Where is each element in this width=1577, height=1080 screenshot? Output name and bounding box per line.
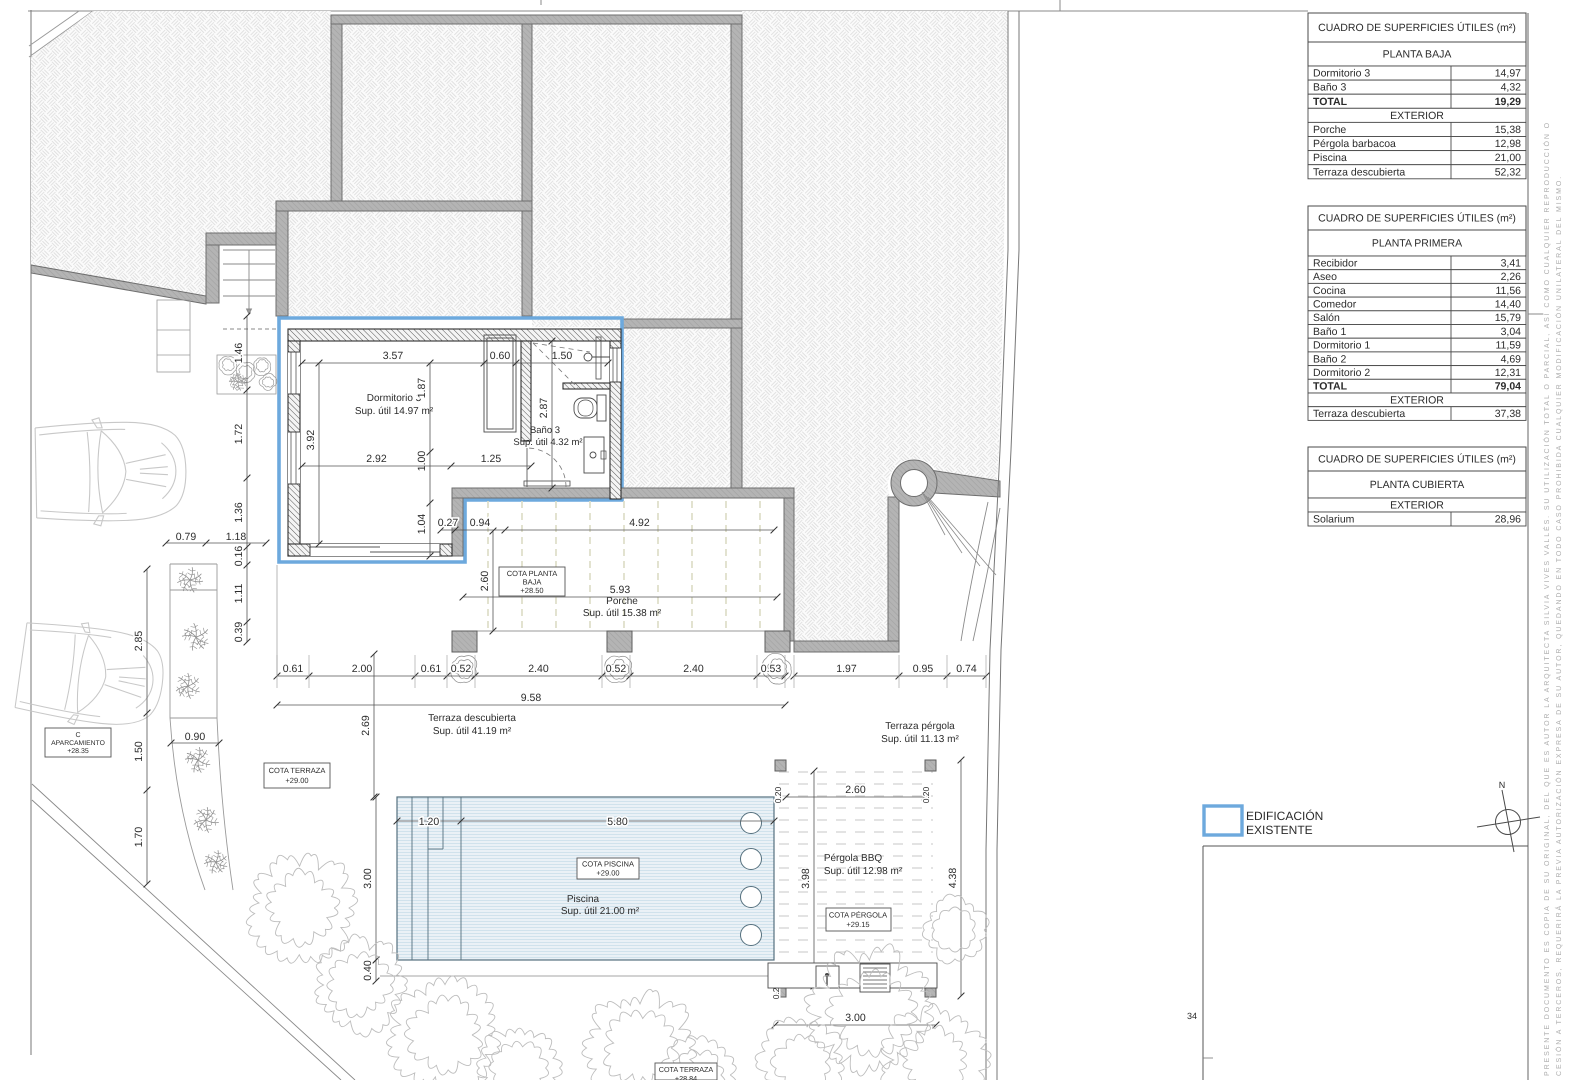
svg-text:TOTAL: TOTAL [1313, 96, 1348, 108]
svg-text:Comedor: Comedor [1313, 298, 1357, 310]
svg-text:0.52: 0.52 [451, 663, 472, 675]
svg-text:12,98: 12,98 [1495, 138, 1521, 150]
svg-text:12,31: 12,31 [1495, 367, 1521, 379]
svg-text:1.50: 1.50 [133, 741, 145, 762]
svg-text:0.61: 0.61 [421, 663, 442, 675]
svg-text:1.18: 1.18 [226, 531, 247, 543]
svg-text:1.36: 1.36 [233, 502, 245, 523]
svg-text:+29.15: +29.15 [846, 920, 869, 929]
svg-text:3,41: 3,41 [1501, 257, 1522, 269]
svg-text:Salón: Salón [1313, 312, 1340, 324]
svg-text:Sup. útil 21.00 m²: Sup. útil 21.00 m² [561, 906, 640, 917]
svg-text:Dormitorio 2: Dormitorio 2 [1313, 367, 1370, 379]
svg-text:EXISTENTE: EXISTENTE [1246, 823, 1313, 837]
svg-text:Sup. útil 11.13 m²: Sup. útil 11.13 m² [881, 734, 959, 745]
svg-text:Porche: Porche [606, 596, 638, 607]
svg-text:Pérgola barbacoa: Pérgola barbacoa [1313, 138, 1396, 150]
svg-text:1.50: 1.50 [552, 350, 573, 362]
svg-text:0.39: 0.39 [233, 622, 245, 643]
svg-text:Solarium: Solarium [1313, 514, 1355, 526]
svg-text:1.87: 1.87 [416, 378, 428, 399]
svg-text:3.92: 3.92 [305, 430, 317, 451]
svg-text:79,04: 79,04 [1495, 381, 1521, 393]
svg-text:5.80: 5.80 [607, 816, 628, 828]
svg-text:Baño 1: Baño 1 [1313, 326, 1346, 338]
svg-text:2.87: 2.87 [538, 398, 550, 419]
svg-text:+29.00: +29.00 [596, 869, 619, 878]
svg-text:APARCAMIENTO: APARCAMIENTO [51, 740, 105, 747]
svg-text:1.72: 1.72 [233, 424, 245, 445]
svg-text:Dormitorio 3: Dormitorio 3 [367, 393, 422, 404]
svg-text:14,97: 14,97 [1495, 68, 1521, 80]
svg-text:2.40: 2.40 [528, 663, 549, 675]
svg-text:EXTERIOR: EXTERIOR [1390, 394, 1444, 406]
svg-text:2.92: 2.92 [366, 453, 387, 465]
svg-text:+28.50: +28.50 [520, 586, 543, 595]
svg-text:Baño 2: Baño 2 [1313, 353, 1346, 365]
svg-text:Sup. útil 12.98 m²: Sup. útil 12.98 m² [824, 866, 903, 877]
svg-text:N: N [1499, 780, 1506, 790]
svg-text:EXTERIOR: EXTERIOR [1390, 500, 1444, 512]
svg-text:Cocina: Cocina [1313, 285, 1346, 297]
svg-text:15,38: 15,38 [1495, 124, 1521, 136]
svg-text:0.52: 0.52 [606, 663, 627, 675]
svg-text:52,32: 52,32 [1495, 166, 1521, 178]
svg-text:2.69: 2.69 [360, 715, 372, 736]
svg-text:COTA PÉRGOLA: COTA PÉRGOLA [829, 911, 887, 920]
svg-text:1.00: 1.00 [416, 451, 428, 472]
svg-text:0.94: 0.94 [470, 517, 491, 529]
svg-text:2.60: 2.60 [479, 571, 491, 592]
svg-text:4,32: 4,32 [1501, 82, 1522, 94]
svg-text:9.58: 9.58 [521, 692, 542, 704]
svg-text:1.97: 1.97 [836, 663, 857, 675]
svg-text:4.38: 4.38 [947, 868, 959, 889]
svg-text:21,00: 21,00 [1495, 152, 1521, 164]
svg-text:0.95: 0.95 [913, 663, 934, 675]
svg-text:Aseo: Aseo [1313, 271, 1337, 283]
svg-text:4.92: 4.92 [629, 517, 650, 529]
svg-text:PLANTA BAJA: PLANTA BAJA [1383, 49, 1452, 61]
svg-text:0.60: 0.60 [490, 350, 511, 362]
svg-text:19,29: 19,29 [1495, 96, 1521, 108]
svg-text:+28.35: +28.35 [67, 748, 89, 755]
svg-text:3.00: 3.00 [845, 1012, 866, 1024]
svg-text:0.40: 0.40 [362, 960, 374, 981]
svg-text:+29.00: +29.00 [285, 776, 308, 785]
svg-text:CUADRO DE SUPERFICIES ÚTILES (: CUADRO DE SUPERFICIES ÚTILES (m²) [1318, 21, 1516, 34]
svg-text:Sup. útil 41.19 m²: Sup. útil 41.19 m² [433, 726, 512, 737]
svg-text:CESIÓN A TERCEROS, REQUERIRÁ L: CESIÓN A TERCEROS, REQUERIRÁ LA PREVIA A… [1554, 175, 1563, 1076]
svg-text:0.53: 0.53 [761, 663, 782, 675]
svg-text:PLANTA CUBIERTA: PLANTA CUBIERTA [1370, 479, 1465, 491]
svg-text:Pérgola BBQ: Pérgola BBQ [824, 853, 883, 864]
svg-text:3.98: 3.98 [800, 868, 812, 889]
svg-text:2.85: 2.85 [133, 631, 145, 652]
svg-text:Terraza descubierta: Terraza descubierta [1313, 408, 1405, 420]
svg-text:3,04: 3,04 [1501, 326, 1522, 338]
svg-text:1.04: 1.04 [416, 514, 428, 535]
svg-text:15,79: 15,79 [1495, 312, 1521, 324]
svg-text:4,69: 4,69 [1501, 353, 1522, 365]
svg-text:Sup. útil 14.97 m²: Sup. útil 14.97 m² [355, 406, 434, 417]
svg-text:Porche: Porche [1313, 124, 1346, 136]
svg-text:11,56: 11,56 [1496, 285, 1522, 297]
svg-text:CUADRO DE SUPERFICIES ÚTILES (: CUADRO DE SUPERFICIES ÚTILES (m²) [1318, 453, 1516, 466]
svg-text:Terraza descubierta: Terraza descubierta [1313, 166, 1405, 178]
svg-text:COTA PISCINA: COTA PISCINA [582, 860, 634, 869]
svg-text:0.20: 0.20 [773, 786, 783, 803]
svg-text:PRESENTE DOCUMENTO ES COPIA DE: PRESENTE DOCUMENTO ES COPIA DE SU ORIGIN… [1542, 121, 1551, 1076]
svg-text:EDIFICACIÓN: EDIFICACIÓN [1246, 809, 1323, 823]
svg-text:C: C [75, 732, 80, 739]
svg-text:11,59: 11,59 [1496, 340, 1522, 352]
svg-text:28,96: 28,96 [1495, 514, 1521, 526]
svg-text:Dormitorio 1: Dormitorio 1 [1313, 340, 1370, 352]
svg-text:1.70: 1.70 [133, 827, 145, 848]
svg-text:0.90: 0.90 [185, 731, 206, 743]
svg-text:Recibidor: Recibidor [1313, 257, 1358, 269]
svg-text:2,26: 2,26 [1501, 271, 1522, 283]
svg-text:34: 34 [1187, 1011, 1197, 1021]
svg-text:CUADRO DE SUPERFICIES ÚTILES (: CUADRO DE SUPERFICIES ÚTILES (m²) [1318, 212, 1516, 225]
svg-text:COTA TERRAZA: COTA TERRAZA [269, 766, 326, 775]
svg-text:0.20: 0.20 [921, 786, 931, 803]
svg-text:Piscina: Piscina [567, 894, 600, 905]
svg-text:3.57: 3.57 [383, 350, 404, 362]
svg-text:Piscina: Piscina [1313, 152, 1347, 164]
svg-text:Terraza descubierta: Terraza descubierta [428, 713, 516, 724]
svg-text:2.40: 2.40 [683, 663, 704, 675]
svg-text:Baño 3: Baño 3 [1313, 82, 1346, 94]
svg-text:EXTERIOR: EXTERIOR [1390, 110, 1444, 122]
svg-text:1.25: 1.25 [481, 453, 502, 465]
svg-text:1.11: 1.11 [233, 584, 245, 604]
svg-text:TOTAL: TOTAL [1313, 381, 1348, 393]
svg-text:PLANTA PRIMERA: PLANTA PRIMERA [1372, 238, 1462, 250]
svg-text:1.46: 1.46 [233, 343, 245, 364]
svg-text:Sup. útil 15.38 m²: Sup. útil 15.38 m² [583, 608, 662, 619]
svg-text:0.61: 0.61 [283, 663, 304, 675]
svg-text:Sup. útil 4.32 m²: Sup. útil 4.32 m² [513, 437, 582, 448]
svg-text:2.00: 2.00 [352, 663, 373, 675]
svg-text:0.16: 0.16 [233, 546, 245, 567]
svg-text:1.20: 1.20 [419, 816, 440, 828]
svg-text:37,38: 37,38 [1495, 408, 1521, 420]
svg-text:+28.84: +28.84 [675, 1074, 697, 1080]
svg-text:0.27: 0.27 [438, 517, 459, 529]
svg-text:0.74: 0.74 [956, 663, 977, 675]
svg-text:Dormitorio 3: Dormitorio 3 [1313, 68, 1370, 80]
svg-text:0.79: 0.79 [176, 531, 197, 543]
svg-text:Baño 3: Baño 3 [530, 425, 560, 436]
svg-text:3.00: 3.00 [362, 868, 374, 889]
svg-text:14,40: 14,40 [1495, 298, 1521, 310]
svg-text:5.93: 5.93 [610, 584, 631, 596]
svg-text:2.60: 2.60 [845, 784, 866, 796]
svg-text:Terraza pérgola: Terraza pérgola [885, 721, 955, 732]
svg-text:COTA TERRAZA: COTA TERRAZA [659, 1065, 714, 1074]
